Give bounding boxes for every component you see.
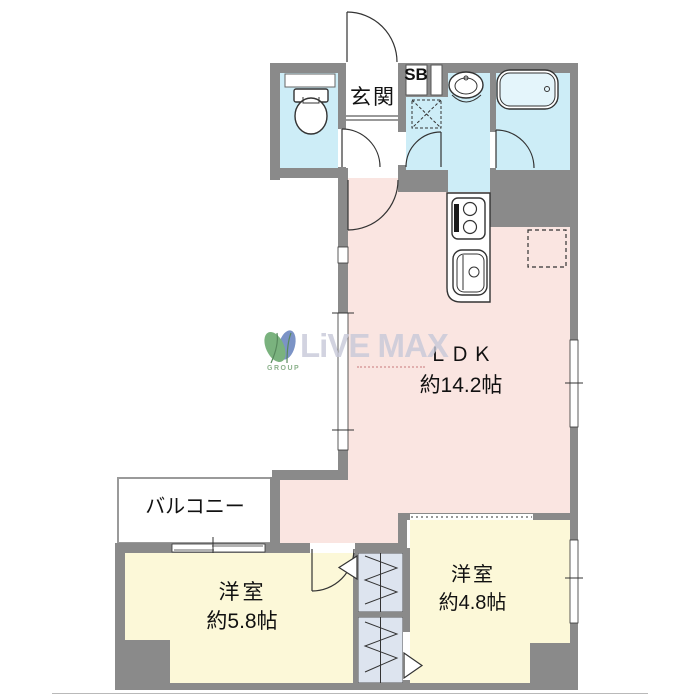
balcony-label: バルコニー (128, 496, 262, 518)
ldk-floor-extension (280, 480, 348, 543)
kitchen-stove-icon (452, 198, 485, 239)
kitchen-counter (447, 193, 490, 302)
toilet-door (342, 129, 380, 167)
washbasin-icon (449, 72, 483, 102)
toilet-window (285, 74, 335, 87)
livemax-watermark: LiVE MAX GROUP (261, 325, 461, 377)
bedroom-right-size-label: 約4.8帖 (415, 592, 530, 614)
entrance-label: 玄関 (344, 86, 402, 109)
watermark-group-text: GROUP (267, 365, 300, 372)
toilet-icon (294, 89, 328, 134)
watermark-brand-text: LiVE MAX (300, 327, 448, 365)
bedroom-left-door-opening (310, 543, 355, 553)
sb-side-cabinet (431, 65, 442, 95)
bathtub-icon (497, 70, 558, 109)
bedroom-right-label: 洋室 (433, 564, 513, 586)
bedroom-left-size-label: 約5.8帖 (168, 610, 316, 633)
image-bottom-rule (52, 693, 648, 694)
entrance-door (347, 12, 397, 62)
ldk-size-label: 約14.2帖 (398, 374, 524, 397)
shoe-box-label: SB (403, 66, 429, 85)
bedroom-left-label: 洋室 (180, 581, 305, 604)
floorplan: 玄関 SB ＬＤＫ 約14.2帖 バルコニー 洋室 約5.8帖 洋室 約4.8帖… (0, 0, 700, 700)
ldk-floor-south (346, 513, 403, 543)
kitchen-sink-icon (453, 250, 487, 295)
watermark-red-dotted-line (357, 363, 425, 368)
entrance-step-line (346, 116, 398, 120)
washroom-door-opening (398, 132, 406, 165)
bathroom-door-opening (490, 132, 496, 168)
bedroom-right-top-opening (410, 514, 533, 520)
